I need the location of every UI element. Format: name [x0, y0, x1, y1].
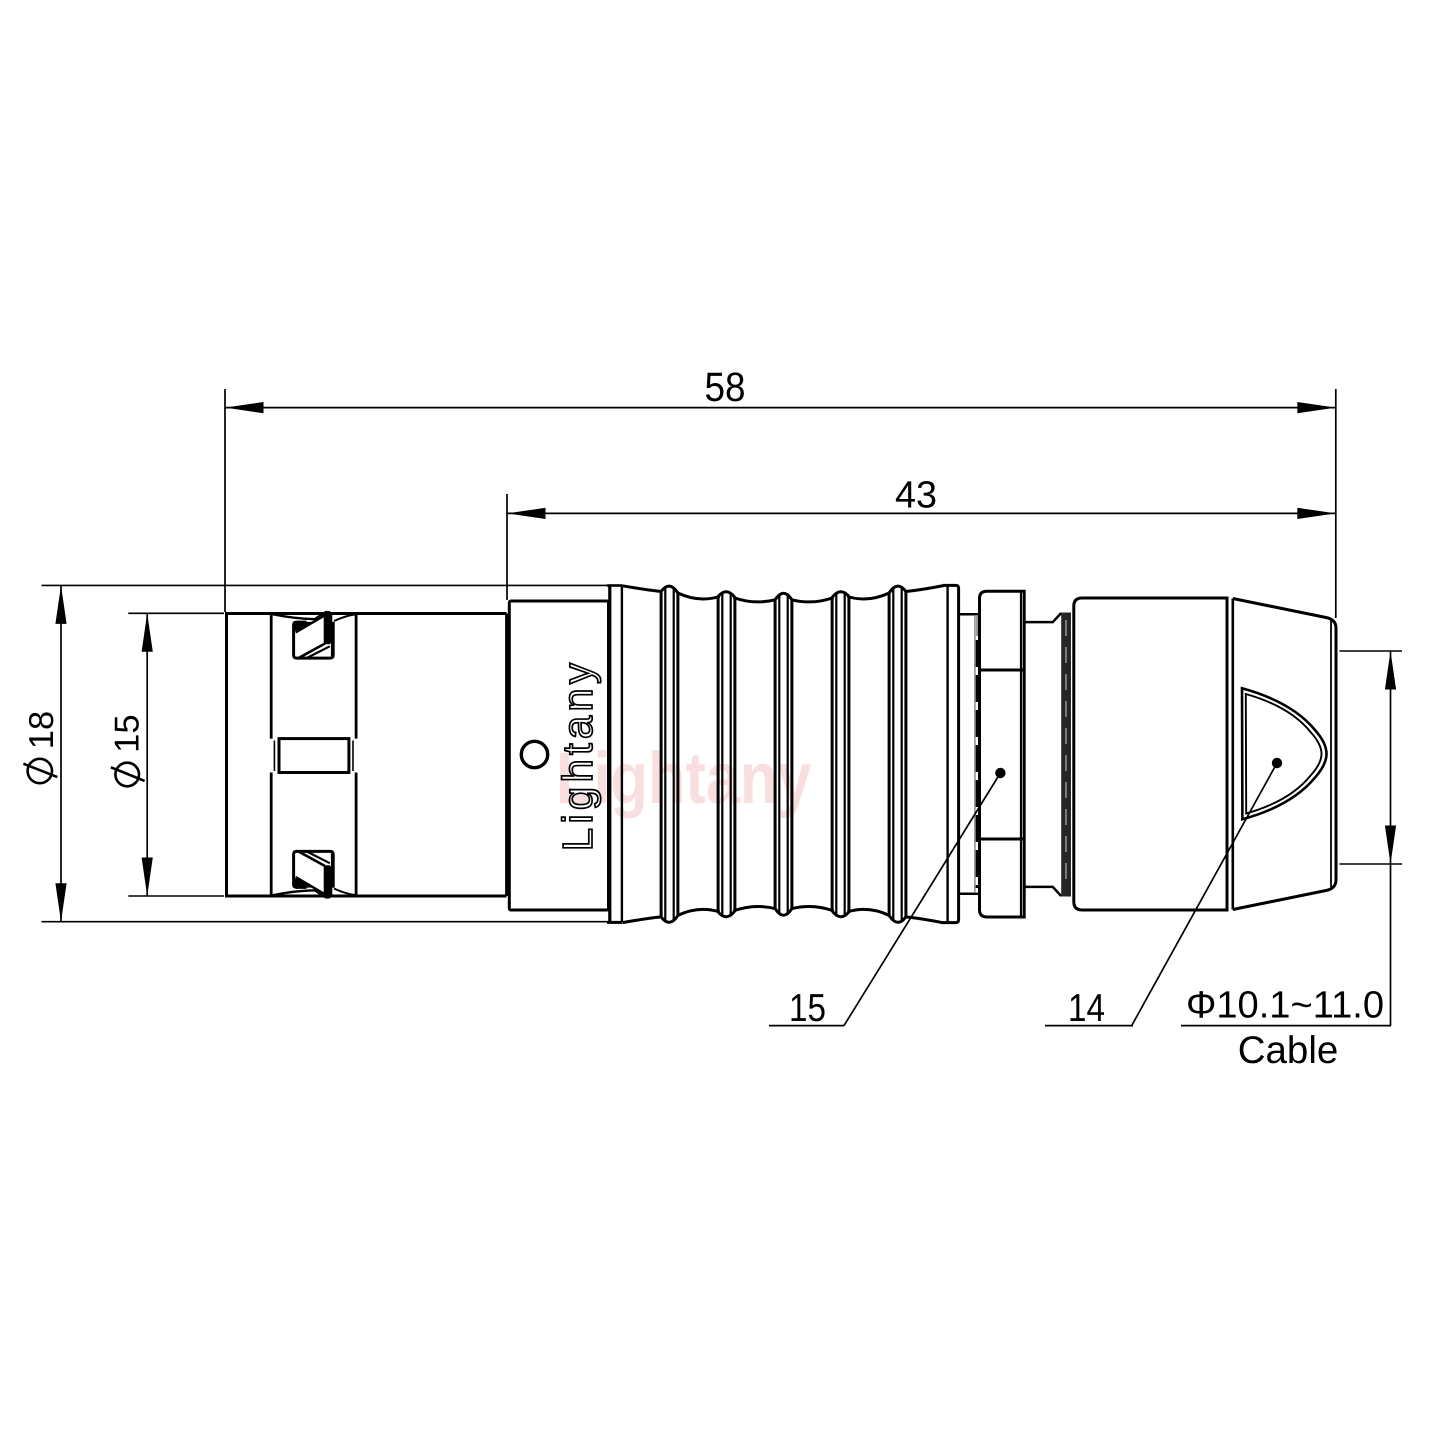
svg-text:14: 14 — [1068, 987, 1105, 1030]
svg-text:Lightany: Lightany — [554, 659, 601, 851]
svg-text:43: 43 — [895, 475, 937, 517]
svg-text:18: 18 — [23, 711, 61, 749]
svg-text:15: 15 — [789, 987, 826, 1030]
svg-text:Cable: Cable — [1238, 1029, 1339, 1072]
svg-text:58: 58 — [705, 364, 746, 410]
svg-text:Φ10.1~11.0: Φ10.1~11.0 — [1186, 985, 1384, 1027]
svg-text:15: 15 — [109, 714, 147, 752]
